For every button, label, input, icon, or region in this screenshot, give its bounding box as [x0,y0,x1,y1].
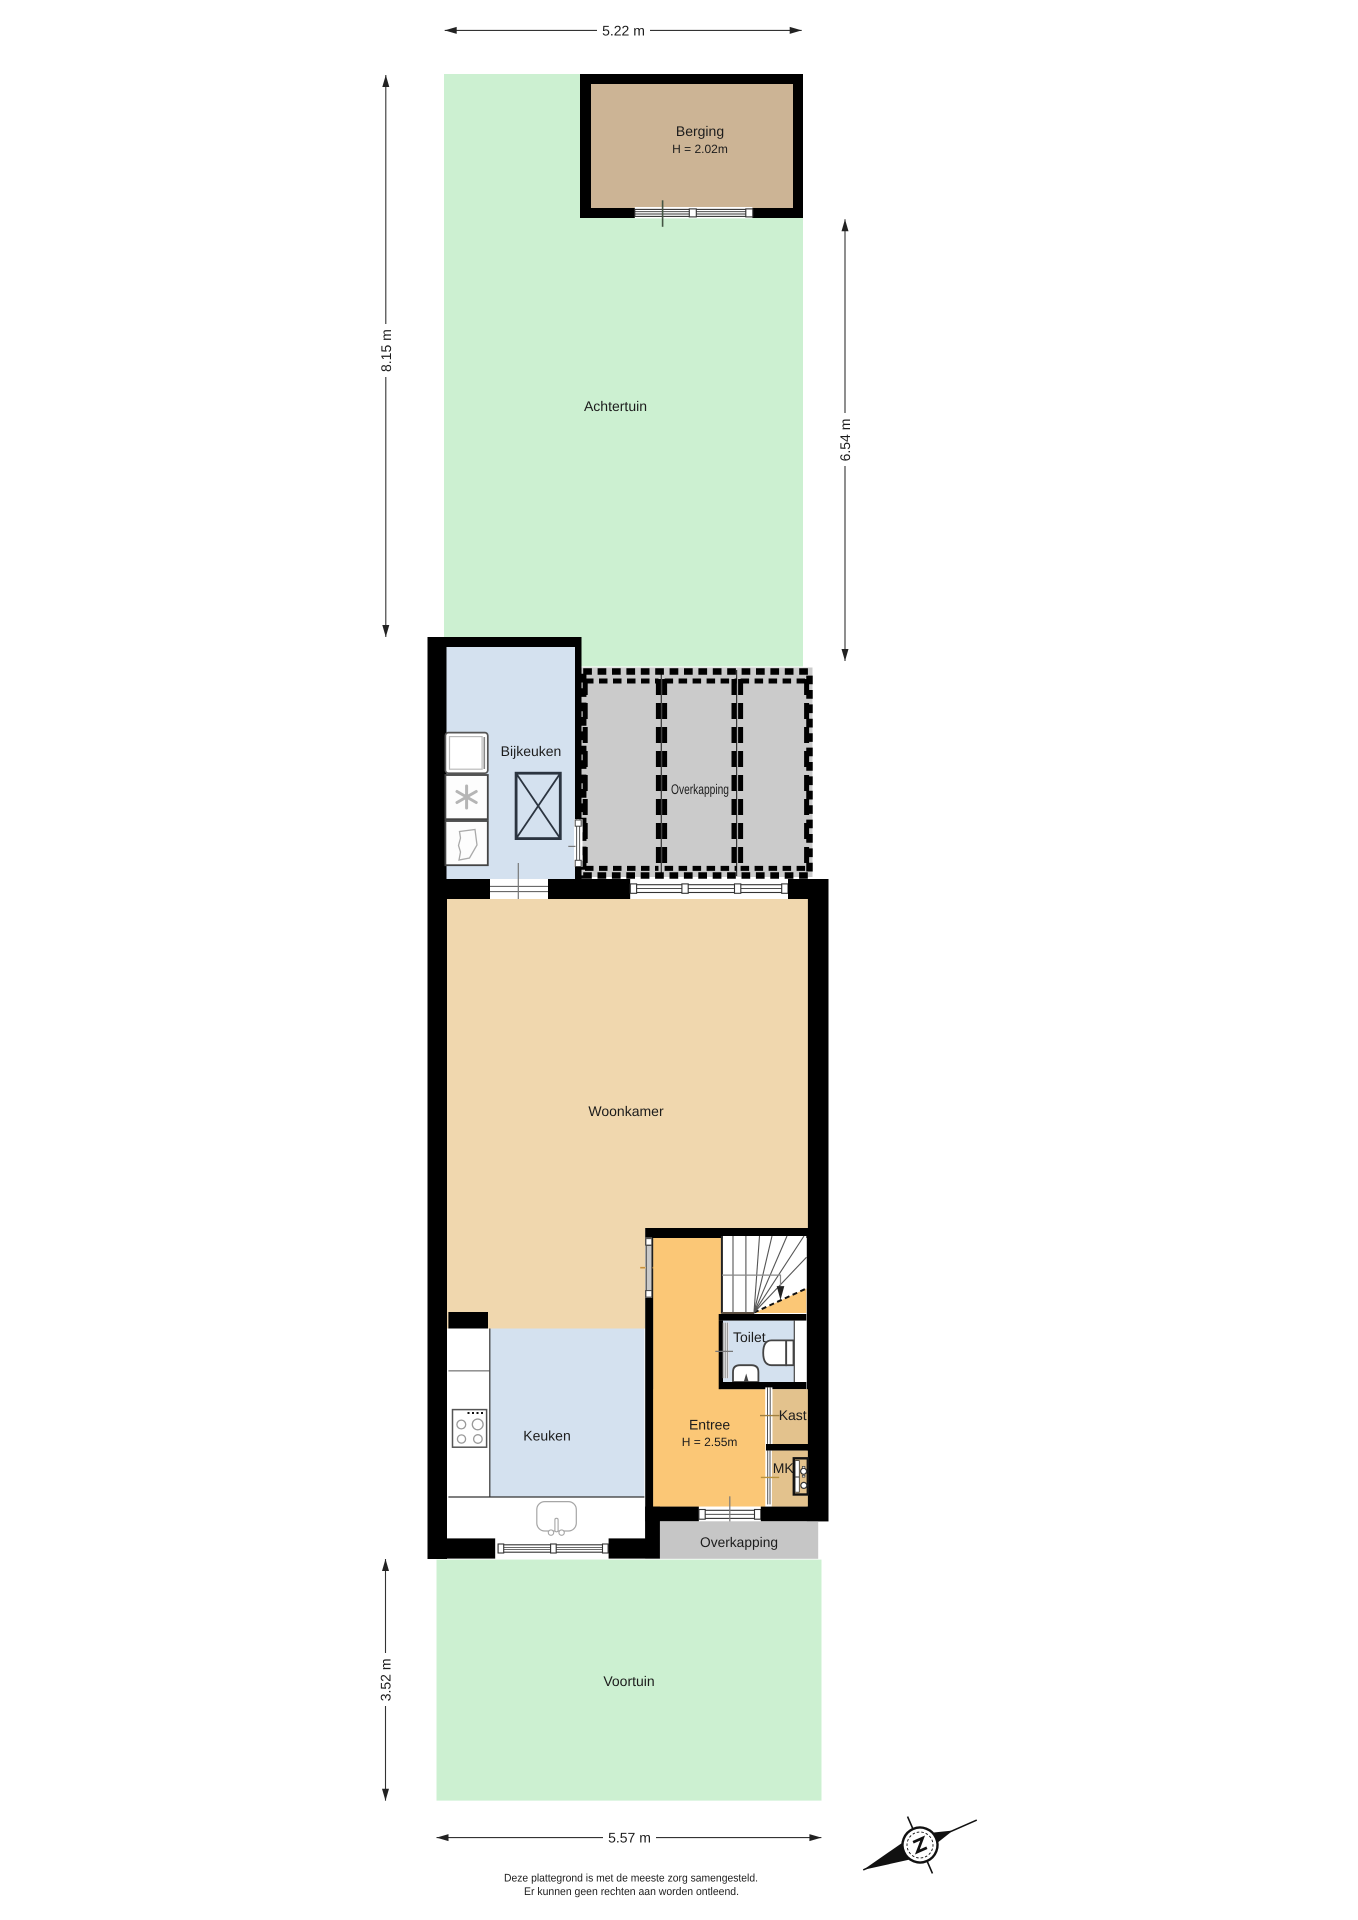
svg-text:Overkapping: Overkapping [700,1534,778,1550]
svg-text:Voortuin: Voortuin [603,1673,654,1689]
svg-text:Woonkamer: Woonkamer [588,1103,664,1119]
svg-text:8.15 m: 8.15 m [378,329,394,372]
svg-text:3.52 m: 3.52 m [378,1658,394,1701]
svg-text:Entree: Entree [689,1417,730,1433]
svg-text:H = 2.55m: H = 2.55m [682,1435,738,1449]
svg-text:Er kunnen geen rechten aan wor: Er kunnen geen rechten aan worden ontlee… [524,1886,739,1898]
svg-text:Kast: Kast [779,1407,807,1423]
svg-text:Overkapping: Overkapping [671,781,729,797]
svg-text:MK: MK [773,1460,795,1476]
svg-text:Bijkeuken: Bijkeuken [501,743,562,759]
svg-text:5.22 m: 5.22 m [602,22,645,38]
svg-text:Deze plattegrond is met de mee: Deze plattegrond is met de meeste zorg s… [504,1873,758,1885]
svg-text:5.57 m: 5.57 m [608,1830,651,1846]
svg-text:Toilet: Toilet [733,1329,766,1345]
svg-text:H = 2.02m: H = 2.02m [672,142,728,156]
svg-text:6.54 m: 6.54 m [837,419,853,462]
svg-text:Keuken: Keuken [523,1428,570,1444]
svg-text:Berging: Berging [676,123,724,139]
svg-text:Achtertuin: Achtertuin [584,398,647,414]
